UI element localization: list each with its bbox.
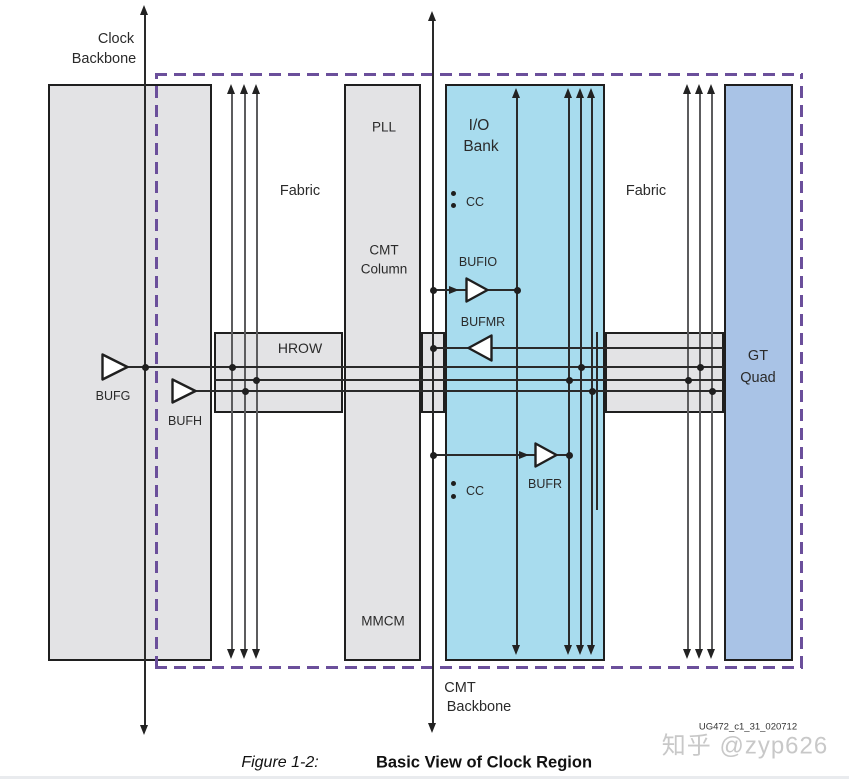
io-clock-line-3: [591, 96, 593, 646]
junction-dot: [142, 364, 149, 371]
io-center-down-arrow-icon: [512, 645, 520, 655]
fabric-left-clock-line-2: [244, 92, 246, 650]
fabric-left-up-arrow-icon-3: [252, 84, 260, 94]
bufmr-label: BUFMR: [461, 315, 505, 329]
cc-top-label: CC: [466, 195, 484, 209]
io-clock-line-1: [568, 96, 570, 646]
watermark: 知乎 @zyp626: [662, 726, 828, 761]
fabric-right-up-arrow-icon-3: [707, 84, 715, 94]
junction-dot: [430, 287, 437, 294]
io-clock-line-4-segment: [596, 332, 598, 510]
fabric-right-down-arrow-icon-3: [707, 649, 715, 659]
bottom-divider: [0, 776, 849, 779]
region-boundary-right: [800, 74, 803, 668]
fabric-right-down-arrow-icon-1: [683, 649, 691, 659]
junction-dot: [709, 388, 716, 395]
region-boundary-bottom: [155, 666, 803, 669]
fabric-left-down-arrow-icon-1: [227, 649, 235, 659]
hrow-label: HROW: [278, 340, 322, 356]
junction-dot: [566, 377, 573, 384]
cmt-column-block: [344, 84, 421, 661]
bufmr-buffer-icon: [466, 333, 494, 363]
junction-dot: [430, 345, 437, 352]
io-center-up-arrow-icon: [512, 88, 520, 98]
junction-dot: [589, 388, 596, 395]
figure-caption-title: Basic View of Clock Region: [376, 754, 592, 773]
bufio-label: BUFIO: [459, 255, 497, 269]
fabric-right-label: Fabric: [626, 183, 666, 199]
gt-quad-label-line2: Quad: [740, 370, 775, 386]
junction-dot: [566, 452, 573, 459]
clock-backbone-column-block: [48, 84, 212, 661]
cc-bottom-bullet-icon: [451, 494, 456, 499]
cmt-backbone-label-line1: CMT: [444, 680, 475, 696]
cmt-column-label-line2: Column: [361, 262, 408, 277]
bufh-output-line: [196, 390, 723, 392]
fabric-left-clock-line-1: [231, 92, 233, 650]
clock-backbone-down-arrow-icon: [140, 725, 148, 735]
fabric-left-down-arrow-icon-3: [252, 649, 260, 659]
junction-dot: [253, 377, 260, 384]
pll-label: PLL: [372, 120, 396, 135]
fabric-left-clock-line-3: [256, 92, 258, 650]
io-up-arrow-icon-3: [587, 88, 595, 98]
cc-top-bullet-icon: [451, 191, 456, 196]
cmt-column-label-line1: CMT: [369, 243, 398, 258]
bufh-label: BUFH: [168, 414, 202, 428]
junction-dot: [685, 377, 692, 384]
fabric-right-clock-line-1: [687, 92, 689, 650]
clock-region-diagram: Clock Backbone Fabric Fabric PLL CMT Col…: [0, 0, 849, 782]
fabric-left-down-arrow-icon-2: [240, 649, 248, 659]
fabric-right-up-arrow-icon-1: [683, 84, 691, 94]
junction-dot: [697, 364, 704, 371]
region-boundary-top: [155, 73, 803, 76]
io-bank-center-clock-line: [516, 96, 518, 646]
io-up-arrow-icon-1: [564, 88, 572, 98]
cc-bottom-bullet-icon: [451, 481, 456, 486]
bufio-input-arrow-icon: [449, 286, 459, 294]
hrow-band-right: [605, 332, 724, 413]
cc-bottom-label: CC: [466, 484, 484, 498]
fabric-right-down-arrow-icon-2: [695, 649, 703, 659]
bufr-input-arrow-icon: [519, 451, 529, 459]
fabric-left-up-arrow-icon-2: [240, 84, 248, 94]
mmcm-label: MMCM: [361, 614, 405, 629]
cmt-backbone-up-arrow-icon: [428, 11, 436, 21]
fabric-left-up-arrow-icon-1: [227, 84, 235, 94]
fabric-right-up-arrow-icon-2: [695, 84, 703, 94]
gt-quad-label-line1: GT: [748, 348, 768, 364]
hrow-line-2: [214, 379, 723, 381]
io-bank-label-line1: I/O: [469, 117, 490, 135]
clock-backbone-label-line1: Clock: [98, 31, 134, 47]
io-up-arrow-icon-2: [576, 88, 584, 98]
bufr-buffer-icon: [533, 441, 559, 469]
region-boundary-left: [155, 74, 158, 668]
bufg-label: BUFG: [96, 389, 131, 403]
junction-dot: [430, 452, 437, 459]
bufr-label: BUFR: [528, 477, 562, 491]
cmt-backbone-label-line2: Backbone: [447, 699, 512, 715]
io-bank-label-line2: Bank: [463, 138, 498, 156]
junction-dot: [514, 287, 521, 294]
io-clock-line-2: [580, 96, 582, 646]
cc-top-bullet-icon: [451, 203, 456, 208]
bufg-buffer-icon: [100, 352, 130, 382]
io-down-arrow-icon-1: [564, 645, 572, 655]
bufio-buffer-icon: [464, 276, 490, 304]
cmt-backbone-down-arrow-icon: [428, 723, 436, 733]
figure-caption-label: Figure 1-2:: [241, 754, 318, 772]
junction-dot: [242, 388, 249, 395]
junction-dot: [578, 364, 585, 371]
fabric-right-clock-line-3: [711, 92, 713, 650]
io-down-arrow-icon-2: [576, 645, 584, 655]
bufg-output-line: [126, 366, 723, 368]
fabric-right-clock-line-2: [699, 92, 701, 650]
clock-backbone-up-arrow-icon: [140, 5, 148, 15]
bufh-buffer-icon: [170, 377, 198, 405]
cmt-backbone-line: [432, 20, 434, 724]
fabric-left-label: Fabric: [280, 183, 320, 199]
clock-backbone-label-line2: Backbone: [72, 51, 137, 67]
io-down-arrow-icon-3: [587, 645, 595, 655]
junction-dot: [229, 364, 236, 371]
